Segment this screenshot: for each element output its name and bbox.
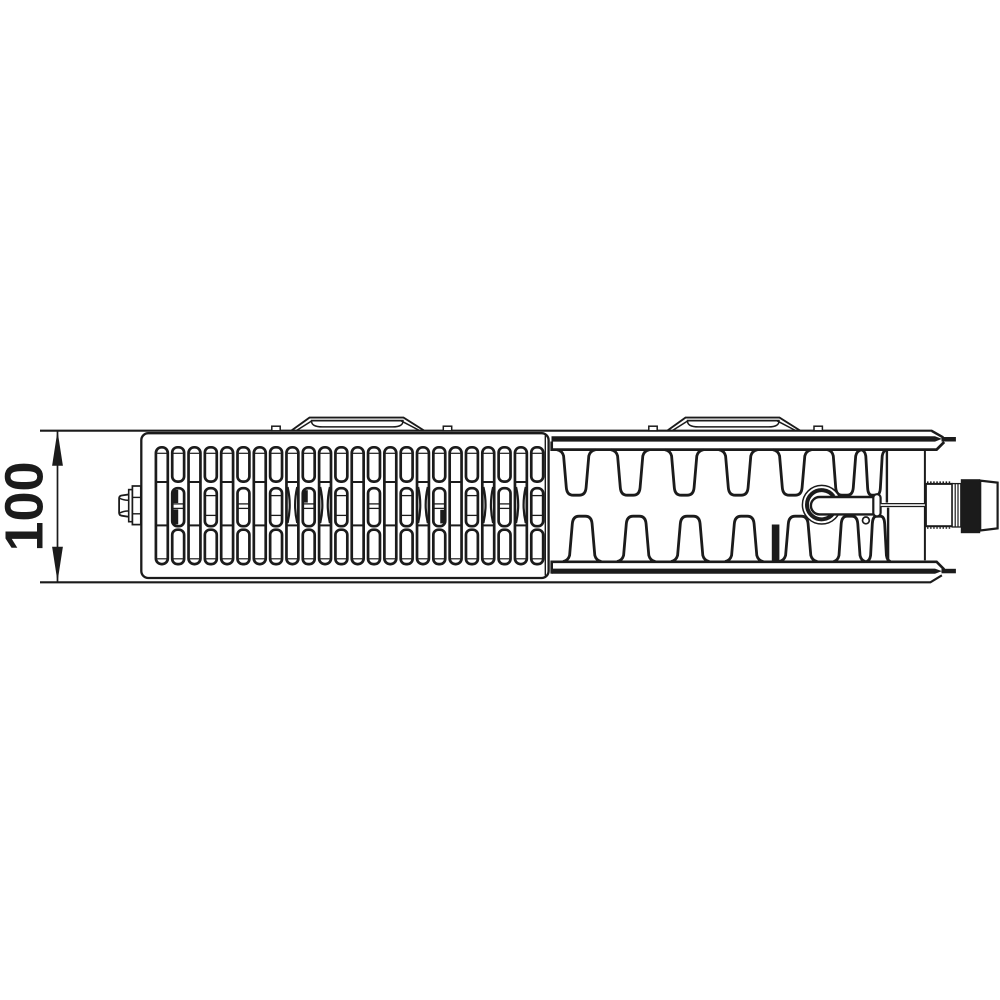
svg-text:100: 100 xyxy=(0,461,55,551)
